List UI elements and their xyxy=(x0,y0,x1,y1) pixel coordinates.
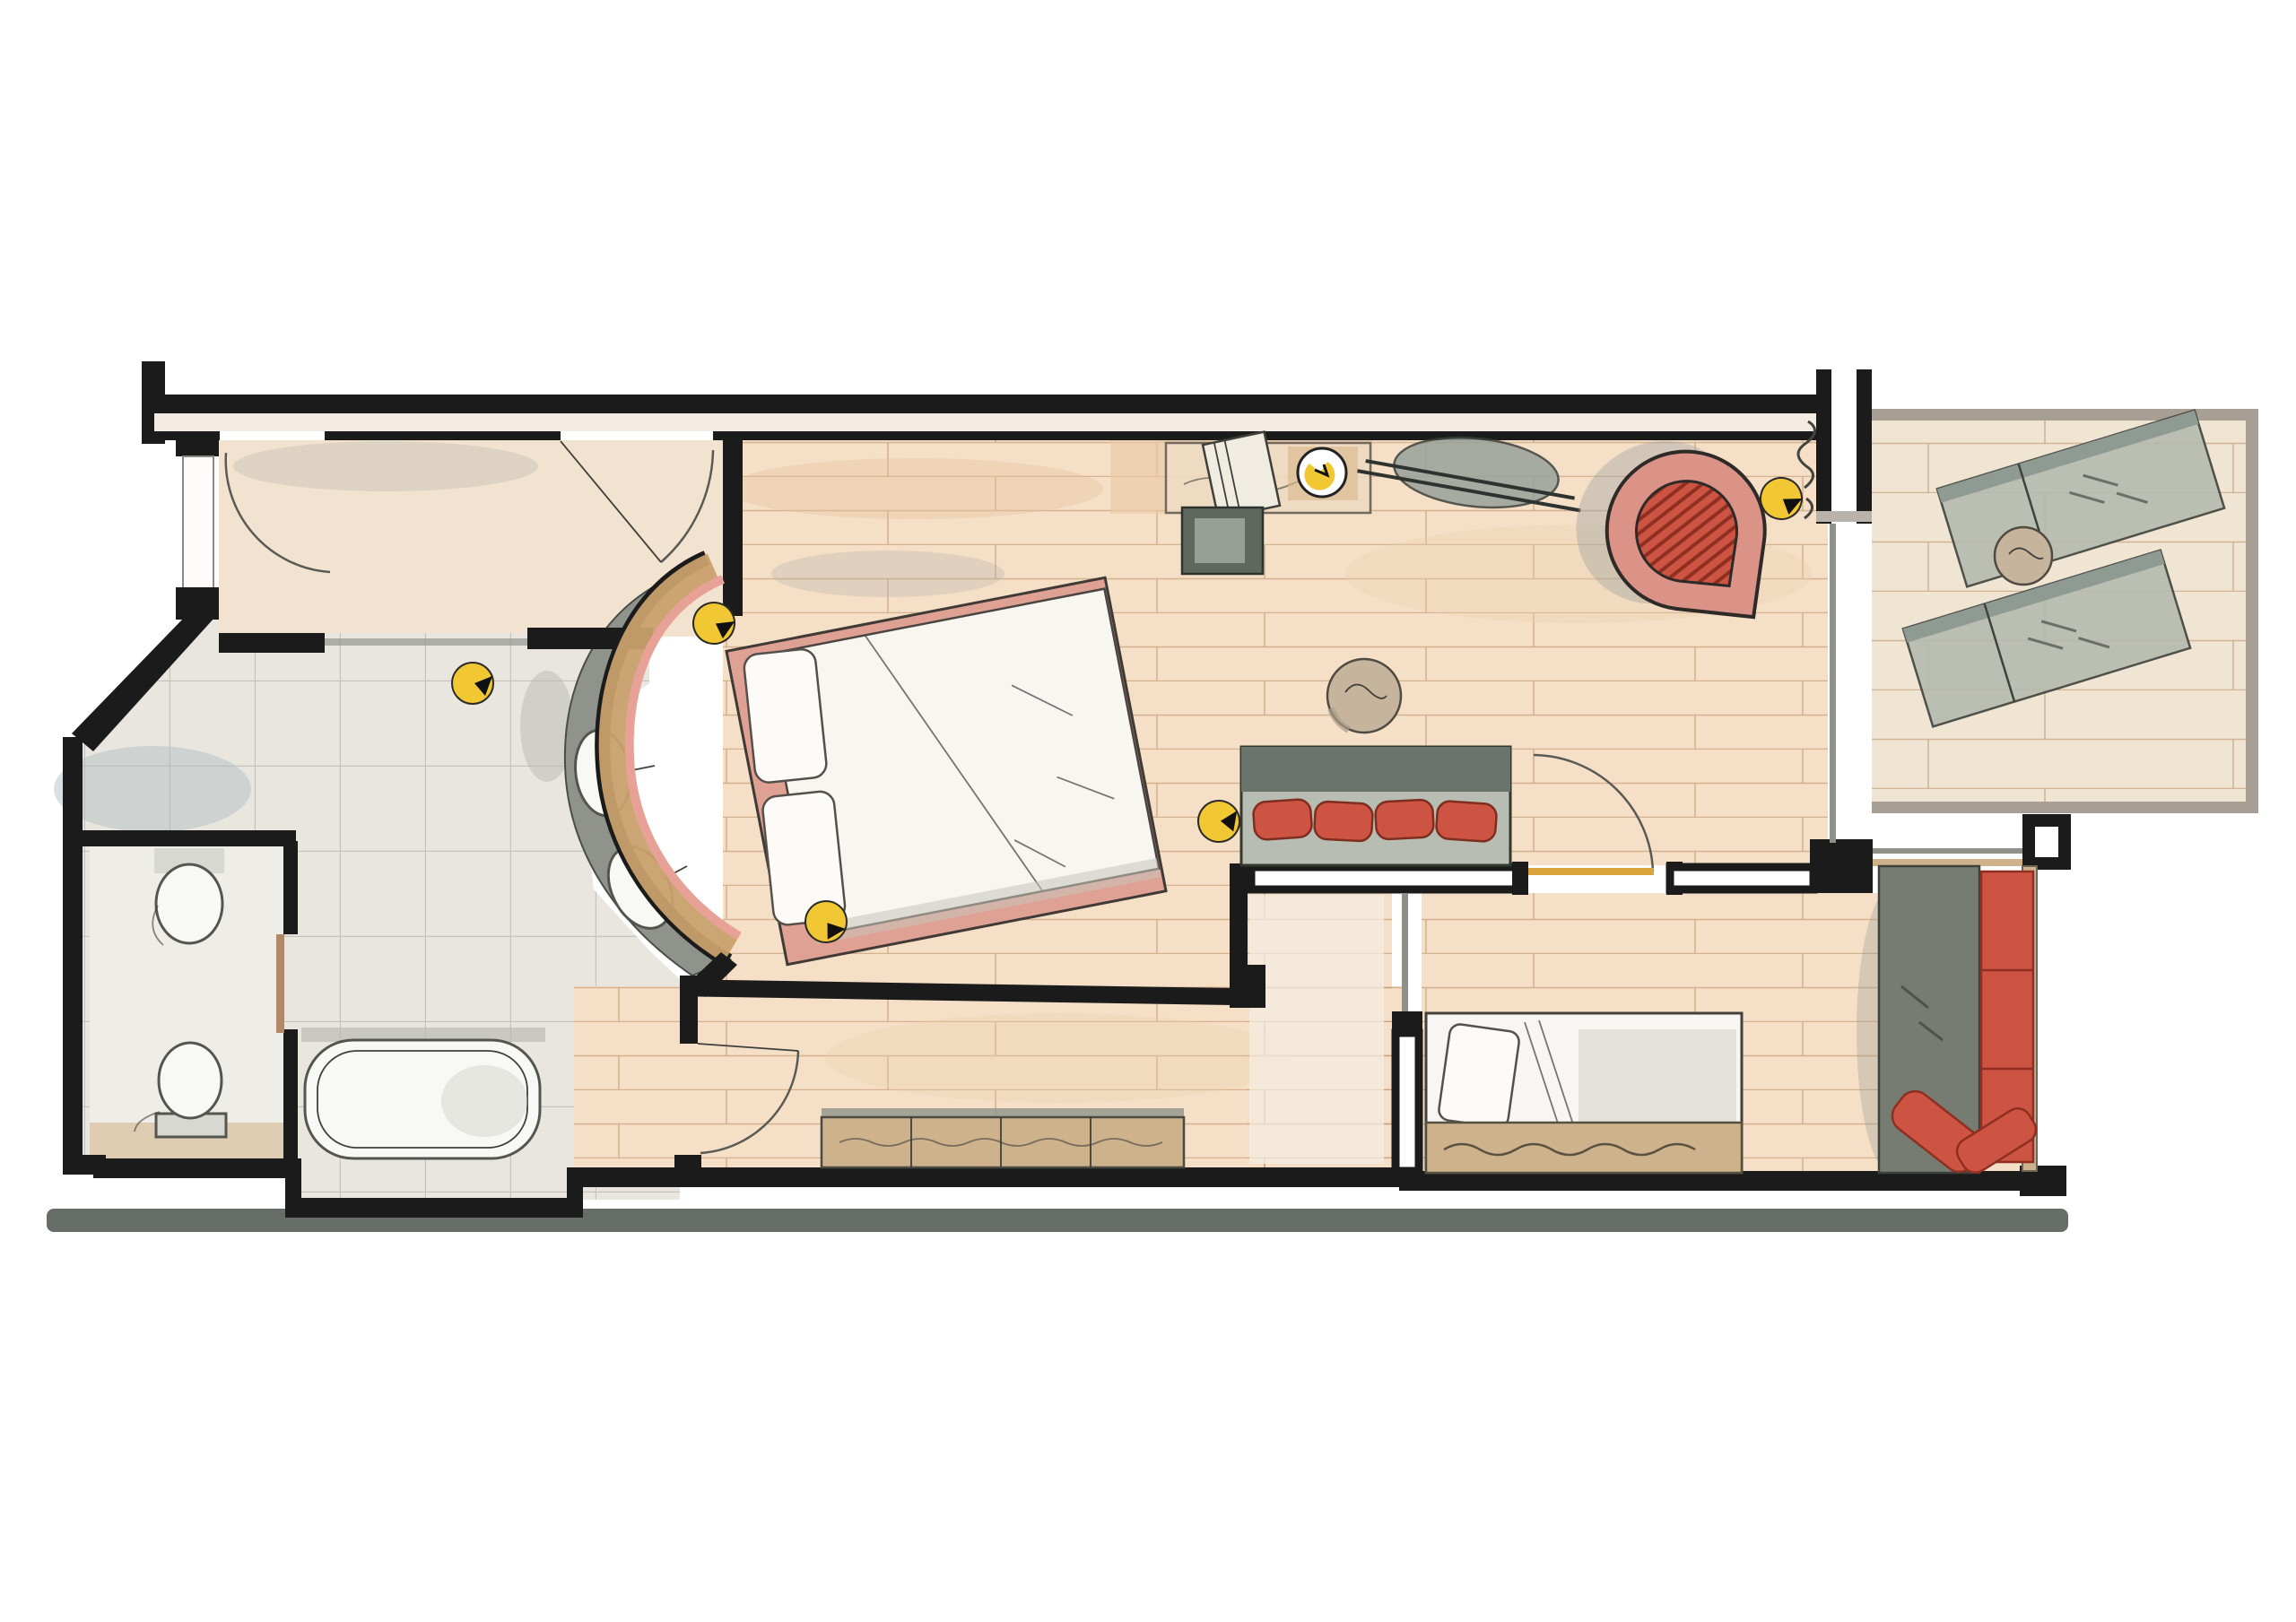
kids-balcony-window xyxy=(1873,848,2025,854)
shower-glass-screen xyxy=(325,638,529,646)
single-bed xyxy=(1426,1013,1742,1173)
kids-door-leaf xyxy=(1528,868,1654,875)
bed-foot-board xyxy=(1426,1123,1742,1173)
wall-kids-corner-block xyxy=(1810,839,1873,893)
bathtub xyxy=(301,1028,545,1158)
ottoman-luggage-bench xyxy=(1182,507,1263,574)
desk-lamp xyxy=(1288,447,1358,500)
balcony-parapet-right xyxy=(2246,409,2258,813)
balcony-door-threshold xyxy=(1816,511,1872,522)
sideboard xyxy=(822,1108,1184,1167)
wc-door-leaf xyxy=(276,934,284,1033)
boulder-side-table xyxy=(1327,659,1401,733)
wall-kids-top-right xyxy=(1670,867,1813,889)
balcony-parapet-top xyxy=(1872,409,2257,421)
wall-hall-stub xyxy=(723,439,743,616)
wall-bed-foot xyxy=(698,988,1257,997)
spotlight-icon xyxy=(452,663,493,704)
balcony-parapet-bottom xyxy=(1872,802,2246,813)
wall-bottom-wc xyxy=(93,1158,292,1178)
wall-top-outer xyxy=(154,395,1824,413)
wall-cavity-strip xyxy=(154,413,1818,431)
wall-left-outer xyxy=(63,737,83,1173)
balcony-table xyxy=(1995,527,2052,585)
window-bench xyxy=(1879,866,2041,1178)
wall-bottom-bath xyxy=(285,1198,574,1218)
wall-bath-door-jamb xyxy=(680,976,698,1044)
sofa xyxy=(1241,747,1510,865)
floor-plan xyxy=(0,0,2296,1622)
wall-niche xyxy=(183,456,213,589)
wall-kids-top-left xyxy=(1251,867,1521,889)
wall-wc-divider xyxy=(83,830,296,846)
balcony-door-pier xyxy=(1816,369,1831,524)
window-pier xyxy=(2022,814,2071,870)
living-balcony-glass xyxy=(1830,524,1836,843)
wall-kids-left xyxy=(1396,1033,1419,1171)
balcony-door-pier xyxy=(1857,369,1872,524)
kids-sliding-track xyxy=(1402,893,1408,1013)
toilet xyxy=(152,848,224,945)
